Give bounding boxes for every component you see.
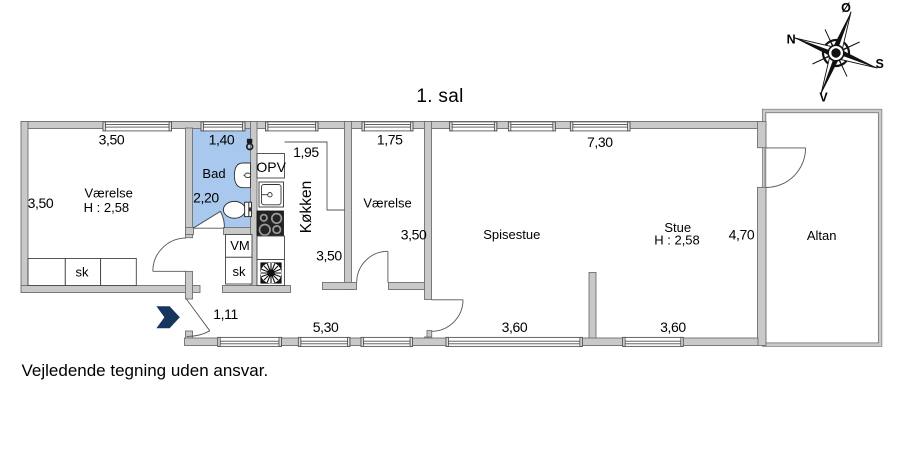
- svg-text:Altan: Altan: [807, 228, 837, 243]
- svg-text:Værelse: Værelse: [363, 195, 411, 210]
- svg-text:3,50: 3,50: [316, 248, 342, 264]
- svg-text:H : 2,58: H : 2,58: [654, 233, 700, 248]
- svg-text:3,60: 3,60: [502, 319, 528, 335]
- svg-text:1,40: 1,40: [209, 132, 235, 148]
- svg-text:VM: VM: [230, 238, 250, 253]
- svg-text:H : 2,58: H : 2,58: [84, 200, 130, 215]
- svg-text:1,95: 1,95: [293, 144, 319, 160]
- svg-text:3,60: 3,60: [660, 319, 686, 335]
- svg-text:3,50: 3,50: [99, 132, 125, 148]
- svg-text:Vejledende tegning uden ansvar: Vejledende tegning uden ansvar.: [22, 361, 269, 380]
- svg-text:1,75: 1,75: [377, 132, 403, 148]
- svg-text:4,70: 4,70: [729, 226, 755, 242]
- svg-text:sk: sk: [76, 265, 90, 280]
- svg-text:3,50: 3,50: [28, 195, 54, 211]
- svg-text:N: N: [787, 33, 796, 47]
- svg-text:OPV: OPV: [256, 159, 286, 175]
- svg-text:Spisestue: Spisestue: [483, 227, 540, 242]
- svg-text:3,50: 3,50: [401, 227, 427, 243]
- svg-text:V: V: [819, 90, 828, 104]
- svg-text:Bad: Bad: [202, 166, 225, 181]
- svg-text:S: S: [876, 57, 884, 71]
- svg-text:5,30: 5,30: [313, 319, 339, 335]
- svg-text:Ø: Ø: [841, 1, 851, 15]
- svg-text:Køkken: Køkken: [298, 181, 315, 234]
- svg-text:2,20: 2,20: [193, 189, 219, 205]
- svg-text:sk: sk: [233, 264, 247, 279]
- svg-text:Værelse: Værelse: [84, 186, 132, 201]
- svg-text:1. sal: 1. sal: [416, 86, 463, 107]
- svg-text:1,11: 1,11: [213, 306, 238, 322]
- svg-text:7,30: 7,30: [587, 134, 613, 150]
